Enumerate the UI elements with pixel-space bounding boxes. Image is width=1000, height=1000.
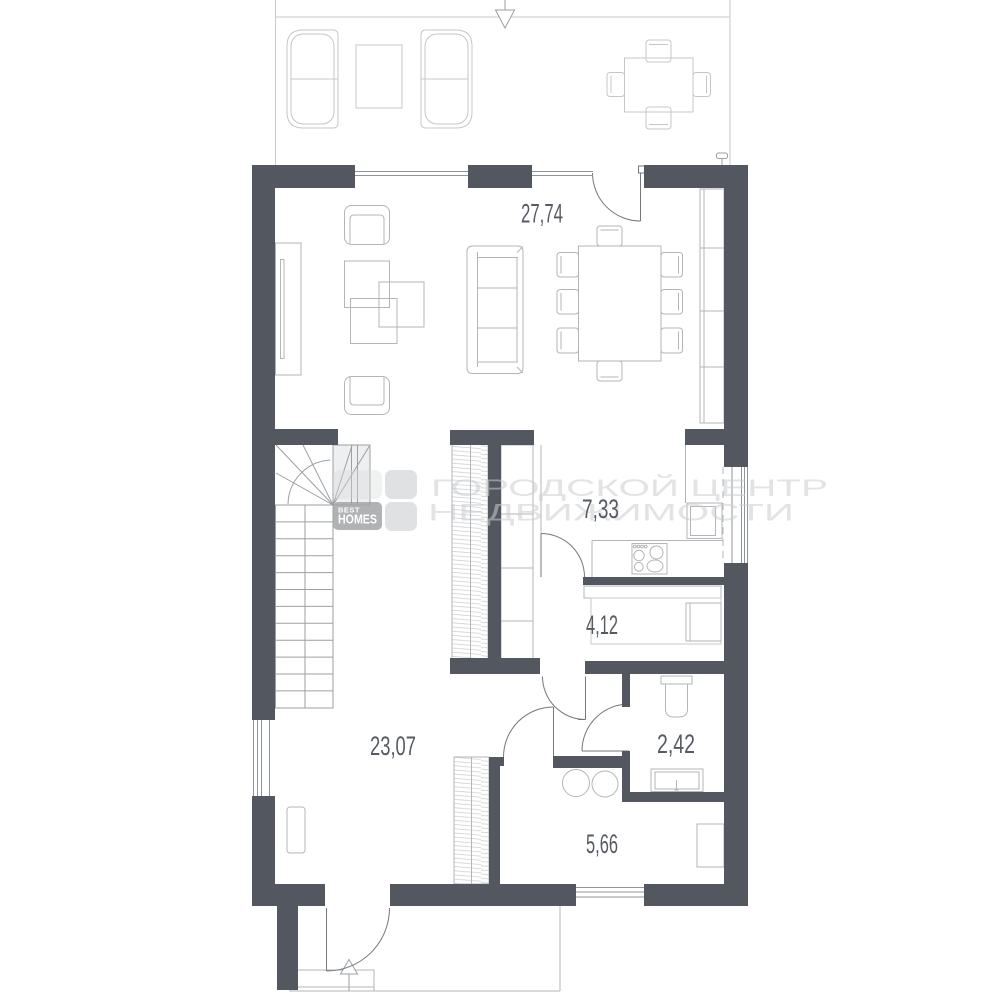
svg-text:2,42: 2,42 <box>657 729 695 759</box>
svg-text:HOMES: HOMES <box>338 513 377 527</box>
svg-text:7,33: 7,33 <box>582 494 619 524</box>
svg-text:4,12: 4,12 <box>586 610 618 640</box>
svg-text:23,07: 23,07 <box>370 731 416 761</box>
svg-text:27,74: 27,74 <box>521 199 563 229</box>
svg-text:5,66: 5,66 <box>586 829 618 859</box>
svg-text:ГОРОДСКОЙ ЦЕНТР: ГОРОДСКОЙ ЦЕНТР <box>431 474 828 502</box>
